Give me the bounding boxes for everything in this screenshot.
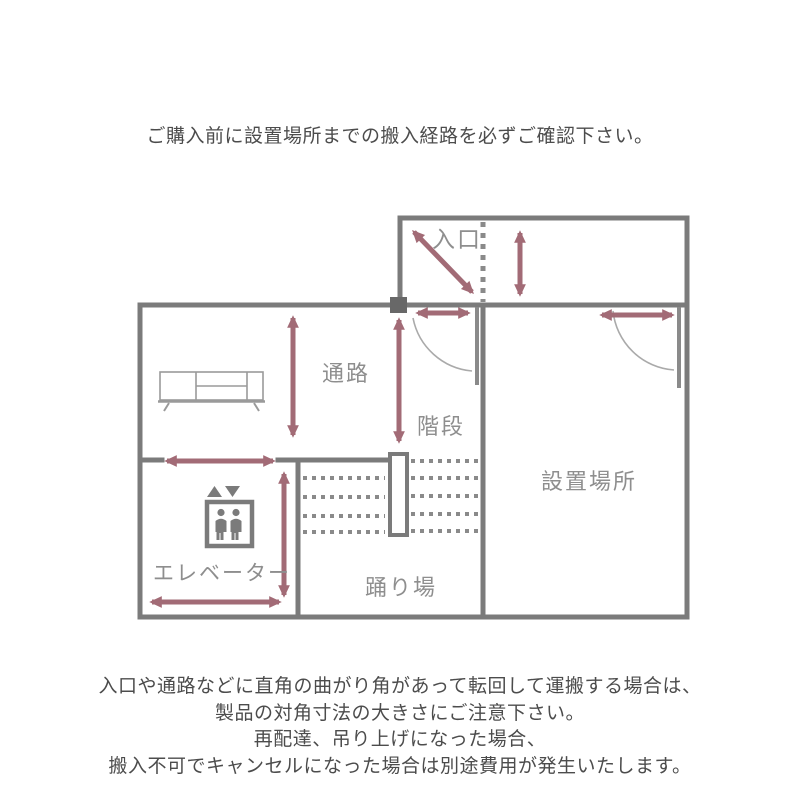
- tv-board-icon: [158, 372, 265, 411]
- label-installation-site: 設置場所: [541, 469, 637, 494]
- bottom-notice-line: 再配達、吊り上げになった場合、: [0, 727, 800, 754]
- page: ご購入前に設置場所までの搬入経路を必ずご確認下さい。: [0, 0, 800, 800]
- wall-elevator-hall: [140, 460, 390, 617]
- door-arc-passage: [413, 318, 472, 371]
- doors: [413, 307, 679, 388]
- bottom-notice-line: 製品の対角寸法の大きさにご注意下さい。: [0, 701, 800, 728]
- label-passage: 通路: [322, 361, 370, 386]
- bottom-notice-line: 搬入不可でキャンセルになった場合は別途費用が発生いたします。: [0, 754, 800, 781]
- elevator-down-triangle: [225, 486, 240, 497]
- label-entrance: 入口: [432, 226, 482, 252]
- walls: [140, 218, 687, 617]
- label-landing: 踊り場: [365, 575, 437, 600]
- door-arc-installation: [613, 311, 674, 370]
- elevator-up-triangle: [207, 486, 222, 497]
- label-stairs: 階段: [417, 414, 465, 439]
- door-hinge-post: [390, 297, 407, 313]
- stair-center-rail: [390, 454, 407, 535]
- bottom-notice-line: 入口や通路などに直角の曲がり角があって転回して運搬する場合は、: [0, 674, 800, 701]
- bottom-notice: 入口や通路などに直角の曲がり角があって転回して運搬する場合は、 製品の対角寸法の…: [0, 674, 800, 780]
- label-elevator: エレベーター: [153, 562, 291, 585]
- elevator-cab-outline: [207, 502, 252, 546]
- elevator-icon: [207, 486, 252, 546]
- wall-outer-boundary: [140, 218, 687, 617]
- staircase: [303, 454, 480, 535]
